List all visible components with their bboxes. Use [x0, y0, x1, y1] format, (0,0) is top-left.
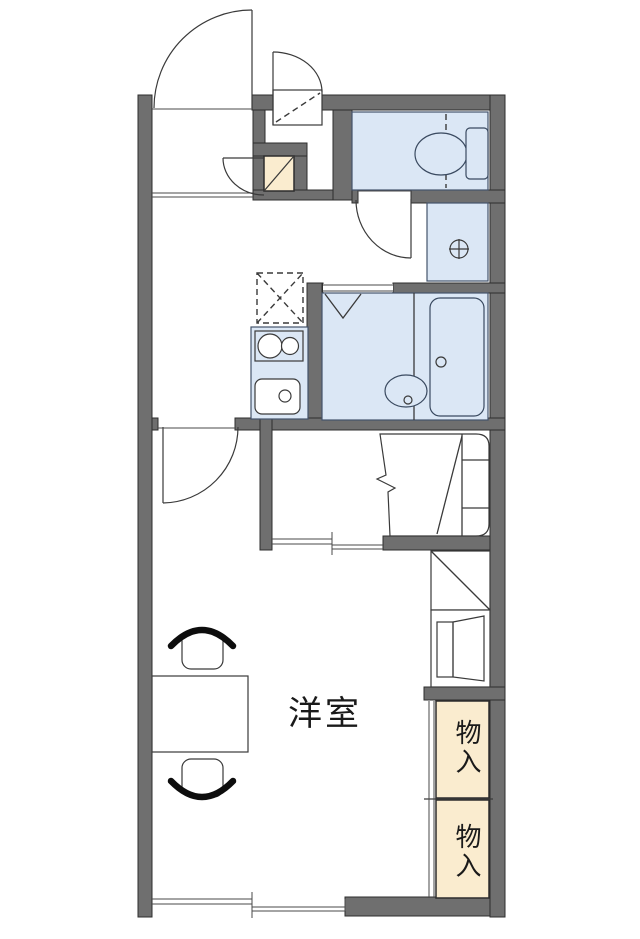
wall-closet-niche-h	[253, 143, 307, 156]
wall-toilet-bottom-left	[352, 190, 358, 203]
washer-pan	[427, 203, 488, 281]
floorplan: 洋室 物入 物入	[0, 0, 640, 939]
toilet-tank-icon	[466, 128, 488, 179]
washer-area	[427, 203, 488, 281]
background	[0, 0, 640, 939]
stove-burner-large-icon	[258, 334, 282, 358]
wall-top-seg-a	[252, 95, 273, 110]
wall-left	[138, 95, 152, 917]
wall-bednook-left	[260, 418, 272, 550]
stove-burner-small-icon	[282, 338, 299, 355]
storage-upper-label: 物入	[449, 719, 486, 777]
wall-kitchen-right	[307, 283, 322, 430]
wall-toilet-bottom-right	[411, 190, 505, 203]
table-icon	[152, 676, 248, 752]
wall-right	[490, 95, 505, 917]
kitchen-sink-icon	[255, 379, 300, 414]
wall-storage-top	[424, 687, 505, 700]
wall-bednook-bottom	[383, 536, 490, 550]
wall-bottom-seg	[345, 897, 490, 916]
washbasin-icon	[385, 375, 427, 407]
bed-icon	[377, 434, 489, 536]
bathroom	[322, 284, 488, 420]
toilet-bowl-icon	[415, 133, 467, 175]
wall-bath-top-right	[393, 283, 505, 293]
wall-mid-stub	[152, 418, 158, 430]
wall-closet-right	[333, 110, 352, 200]
storage-lower-label: 物入	[449, 823, 486, 881]
main-room-label: 洋室	[288, 686, 362, 735]
wall-top-seg-b	[322, 95, 490, 110]
bathtub-icon	[430, 298, 484, 416]
